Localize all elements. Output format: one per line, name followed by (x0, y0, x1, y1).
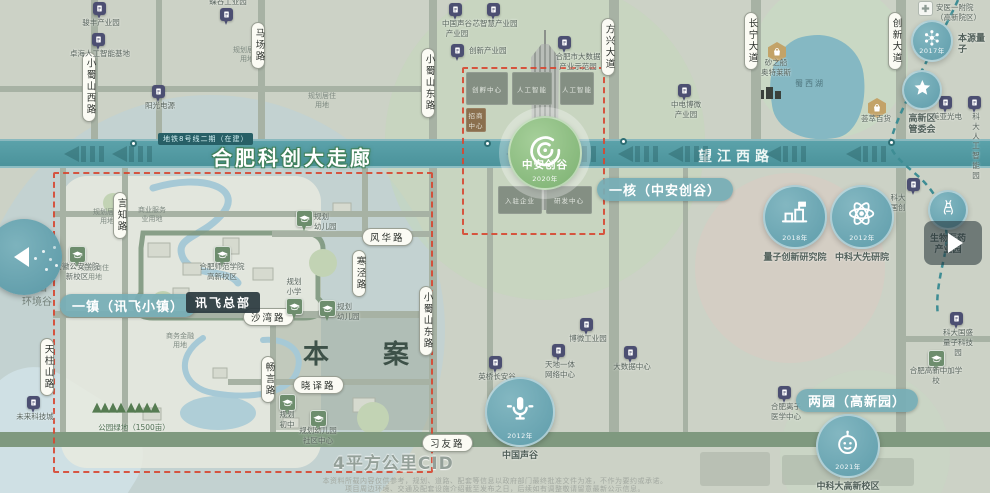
play-icon (948, 233, 963, 253)
map-pin (939, 96, 952, 109)
doc-icon (582, 320, 591, 329)
map-pin-label: 骏丰产业园 (82, 18, 120, 28)
school-marker (69, 246, 86, 263)
doc-icon (560, 38, 569, 47)
map-pin (968, 96, 981, 109)
school-marker (310, 410, 327, 427)
arrow-left-icon (618, 146, 633, 162)
doc-icon (554, 346, 563, 355)
school-marker-label: 安徽公安学院 新校区 (55, 262, 100, 282)
map-pin (152, 85, 165, 98)
info-circle-year: 2017年 (913, 45, 951, 55)
road-label: 风华路 (362, 228, 413, 246)
info-circle-label: 量子创新研究院 (763, 253, 826, 264)
doc-icon (154, 87, 163, 96)
arrow-left-icon (766, 146, 781, 162)
map-pin-label: 未来科技城 (16, 412, 54, 422)
wangjiang-west-road-label: 望江西路 (698, 146, 774, 166)
map-pin (558, 36, 571, 49)
lake-name: 蜀西湖 (795, 78, 825, 89)
doc-icon (909, 180, 918, 189)
corridor-title: 合肥科创大走廊 (212, 142, 373, 171)
road-line (0, 86, 430, 92)
doc-icon (222, 10, 231, 19)
shop-bag-icon (771, 46, 783, 58)
map-pin (489, 356, 502, 369)
map-pin (624, 346, 637, 359)
road-label: 创新大道 (888, 12, 902, 70)
cross-icon (920, 3, 931, 14)
map-pin-label: 大数据中心 (613, 362, 651, 372)
road-label: 晓译路 (293, 376, 344, 394)
doc-icon (626, 348, 635, 357)
map-pin (678, 84, 691, 97)
arrow-stripes-icon (129, 146, 153, 162)
info-circle: 2021年 (816, 414, 880, 478)
doc-icon (95, 4, 104, 13)
map-pin (93, 2, 106, 15)
school-marker (279, 394, 296, 411)
map-pin-label: 中国声谷 产业园 (442, 19, 472, 39)
tower-spire (544, 30, 546, 46)
road-label: 言知路 (113, 192, 127, 239)
doc-icon (780, 388, 789, 397)
map-pin (552, 344, 565, 357)
doc-icon (29, 398, 38, 407)
disclaimer-line: 项目周边环境、交通及配套设施介绍截至发布之日，后续如有调整敬请留意最新公示信息。 (15, 484, 975, 493)
road-label: 方兴大道 (601, 18, 615, 76)
school-marker (214, 246, 231, 263)
info-circle-name: 中安创谷 (510, 157, 580, 172)
doc-icon (491, 358, 500, 367)
arrow-stripes-icon (783, 146, 807, 162)
shopping-marker-label: 荟萃百货 (861, 114, 891, 124)
map-pin (451, 44, 464, 57)
info-circle-year: 2012年 (487, 430, 553, 440)
info-circle-year: 2020年 (510, 173, 580, 183)
doc-icon (680, 86, 689, 95)
arrow-left-icon (112, 146, 127, 162)
xunfei-hq-label: 讯飞总部 (186, 292, 260, 313)
road-label: 小蜀山东路 (419, 286, 433, 356)
arrow-left-icon (64, 146, 79, 162)
info-circle-label: 中国声谷 (502, 451, 538, 462)
info-circle-label: 中科大先研院 (835, 253, 889, 264)
info-circle: 2012年 (485, 377, 555, 447)
info-circle (902, 70, 942, 110)
info-circle: 2018年 (763, 185, 827, 249)
school-marker (286, 298, 303, 315)
doc-icon (952, 314, 961, 323)
map-pin-label: 阳光电源 (145, 101, 175, 111)
info-circle-label: 本源量子 (958, 34, 990, 57)
road-label: 习友路 (422, 434, 473, 452)
map-pin-label: 创新产业园 (469, 46, 507, 56)
doc-icon (94, 35, 103, 44)
grad-cap-icon (216, 248, 229, 261)
arrow-stripes-icon (685, 146, 709, 162)
road-label: 寒泾路 (352, 250, 366, 297)
park-trees-icon: ▲▲▲▲ ▲▲▲▲ (92, 400, 158, 415)
road-label: 天柱山路 (40, 338, 54, 396)
school-marker-label: 规划 幼儿园 (337, 302, 360, 322)
grad-cap-icon (312, 412, 325, 425)
arrow-stripes-icon (863, 146, 887, 162)
info-circle: 中安创谷2020年 (508, 116, 582, 190)
skyline-illustration (775, 91, 781, 99)
road-label: 畅言路 (261, 356, 275, 403)
shop-bag-icon (871, 102, 883, 114)
map-pin (449, 3, 462, 16)
grad-cap-icon (321, 302, 334, 315)
info-circle: 2012年 (830, 185, 894, 249)
school-marker-label: 规划 初中 (280, 410, 295, 430)
doc-icon (941, 98, 950, 107)
map-pin-label: 天地一体 网络中心 (545, 360, 575, 380)
map-pin-label: 中电博微 产业园 (671, 100, 701, 120)
metro-station-dot (888, 139, 895, 146)
info-circle-year: 2021年 (818, 461, 878, 471)
map-pin-label: 芯智慧产业园 (473, 19, 518, 29)
metro-station-dot (130, 140, 137, 147)
school-marker-label: 规划 幼儿园 (314, 212, 337, 232)
info-circle-year: 2012年 (832, 232, 892, 242)
grad-cap-icon (930, 352, 943, 365)
grad-cap-icon (298, 212, 311, 225)
chevron-left-icon (14, 247, 29, 267)
doc-icon (451, 5, 460, 14)
info-circle: 2017年 (911, 20, 953, 62)
road-label: 马场路 (251, 22, 265, 69)
school-marker-label: 规划 小学 (287, 277, 302, 297)
sparkle-icon (34, 257, 37, 260)
map-pin-label: 科大人工 智能园 (969, 112, 983, 180)
map-pin (487, 3, 500, 16)
zone-label-parks: 两园（高新园） (796, 389, 918, 412)
doc-icon (453, 46, 462, 55)
lab-icon (779, 198, 810, 229)
road-label: 长宁大道 (744, 12, 758, 70)
park-green-label: 公园绿地（1500亩） (98, 422, 170, 433)
robot-icon (832, 427, 863, 458)
map-pin-label: 美亚光电 (932, 112, 962, 122)
map-pin (92, 33, 105, 46)
arrow-stripes-icon (635, 146, 659, 162)
map-pin (778, 386, 791, 399)
arrow-left-icon (668, 146, 683, 162)
school-marker (296, 210, 313, 227)
metro-station-dot (620, 138, 627, 145)
atom-icon (846, 198, 877, 229)
map-pin (27, 396, 40, 409)
road-line (258, 0, 265, 140)
star-icon (913, 78, 932, 97)
map-pin (907, 178, 920, 191)
doc-icon (970, 98, 979, 107)
hospital-marker-label: 安医一附院 （高新院区） (936, 3, 981, 23)
road-line (683, 168, 688, 432)
road-label: 小蜀山东路 (421, 48, 435, 118)
arrow-left-icon (846, 146, 861, 162)
grad-cap-icon (281, 396, 294, 409)
shopping-marker-label: 砂之船 奥特莱斯 (761, 58, 791, 78)
zone-label-core: 一核（中安创谷） (597, 178, 733, 201)
map-pin-label: 工投蜀山 蝶谷工业园 (209, 0, 247, 7)
road-label: 小蜀山西路 (82, 52, 96, 122)
map-pin (580, 318, 593, 331)
grad-cap-icon (288, 300, 301, 313)
school-marker (319, 300, 336, 317)
grad-cap-icon (71, 248, 84, 261)
hospital-marker (918, 1, 933, 16)
skyline-illustration (766, 87, 773, 99)
road-line (156, 0, 162, 140)
dna-icon (939, 198, 958, 217)
doc-icon (489, 5, 498, 14)
map-pin (220, 8, 233, 21)
site-name: 本案 (303, 334, 463, 371)
cid-area-text: 4平方公里CID (333, 449, 454, 474)
school-marker-label: 合肥高新中加学校 (909, 366, 963, 386)
arrow-stripes-icon (81, 146, 105, 162)
metro-line8-badge: 地铁8号线二期（在建） (158, 133, 253, 145)
carousel-next-button[interactable] (924, 221, 982, 265)
mic-icon (503, 392, 537, 426)
info-circle-year: 2018年 (765, 232, 825, 242)
map-pin-label: 博微工业园 (569, 334, 607, 344)
info-circle-label: 高新区 管委会 (908, 114, 935, 137)
school-marker-label: 合肥师范学院 高新校区 (200, 262, 245, 282)
map-pin-label: 科大国盛 量子科技园 (942, 328, 974, 357)
planning-map: 蜀西湖 合肥科创大走廊 望江西路 地铁8号线二期（在建） 一核（中安创谷） 一镇… (0, 0, 990, 493)
land-use-label: 规划居住 用地 (308, 92, 336, 110)
school-marker-label: 规划幼儿园 社区中心 (299, 426, 337, 446)
map-pin-label: 卓海人工智能基地 (70, 49, 130, 59)
map-pin (950, 312, 963, 325)
zone-label-town: 一镇（讯飞小镇） (60, 294, 196, 317)
school-marker (928, 350, 945, 367)
map-pin-label: 合肥市大数据 产业示范园 (556, 52, 601, 72)
